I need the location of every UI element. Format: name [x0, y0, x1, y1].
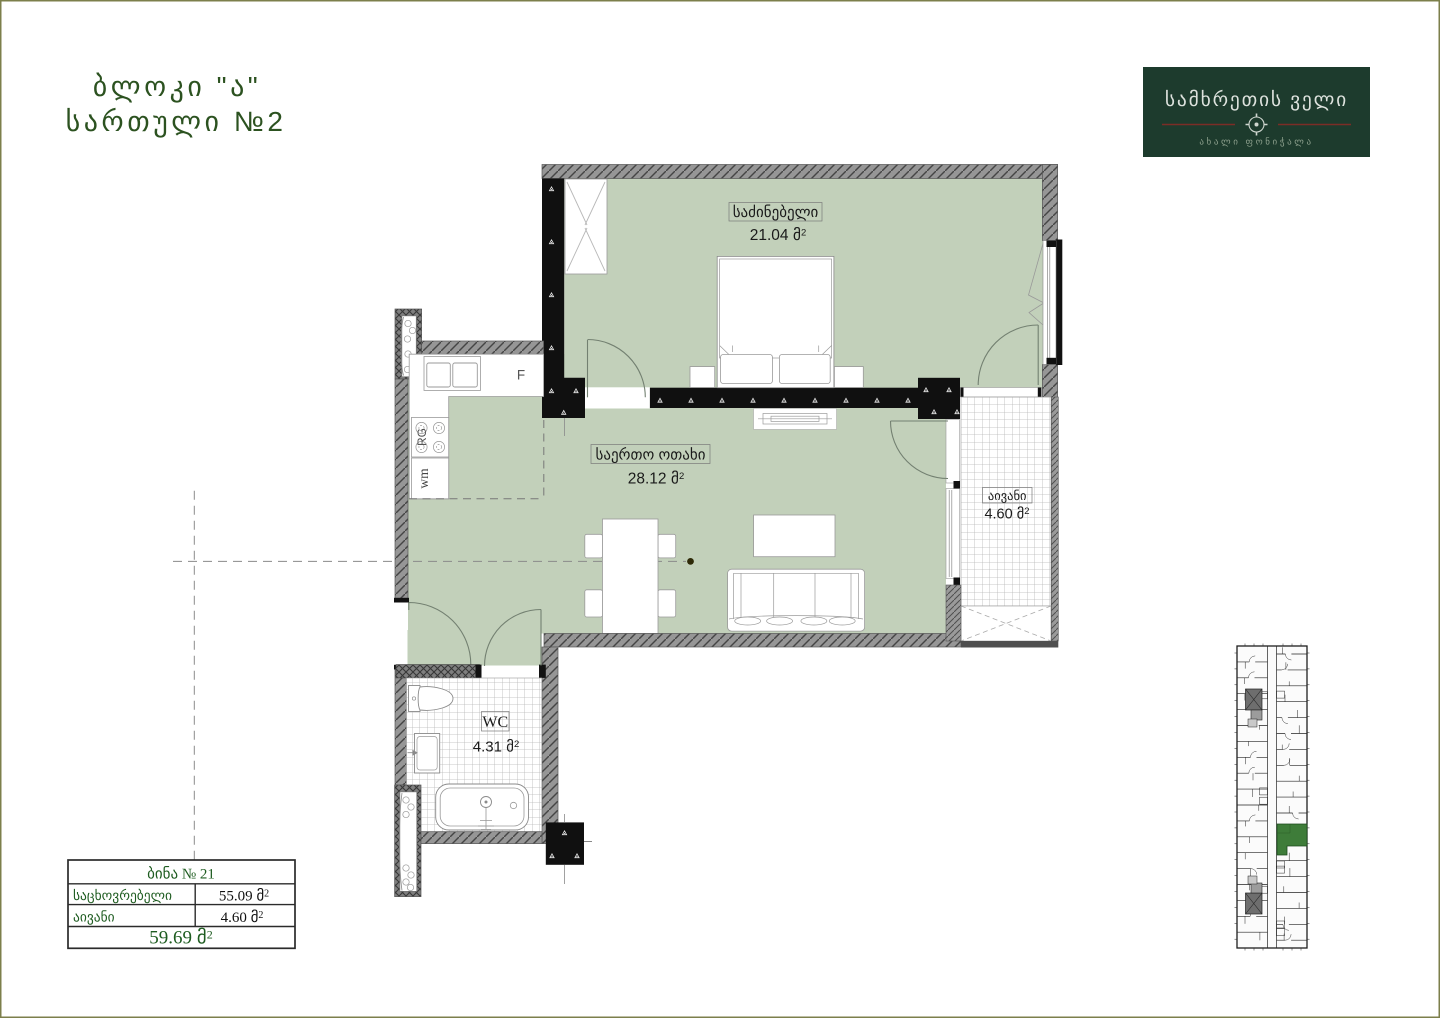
svg-text:4.31 მ2: 4.31 მ2 [473, 739, 520, 756]
svg-text:სართული №2: სართული №2 [66, 106, 287, 138]
svg-text:59.69 მ2: 59.69 მ2 [149, 928, 212, 949]
svg-text:აივანი: აივანი [73, 910, 115, 926]
svg-text:საძინებელი: საძინებელი [733, 204, 819, 221]
svg-text:F: F [517, 368, 525, 383]
svg-text:4.60 მ2: 4.60 მ2 [984, 506, 1029, 523]
svg-text:21.04 მ2: 21.04 მ2 [750, 226, 807, 244]
svg-text:28.12 მ2: 28.12 მ2 [628, 470, 685, 488]
svg-text:wm: wm [416, 468, 431, 489]
svg-text:საცხოვრებელი: საცხოვრებელი [73, 888, 172, 904]
svg-text:სამხრეთის ველი: სამხრეთის ველი [1165, 89, 1348, 111]
svg-text:ბინა № 21: ბინა № 21 [147, 866, 215, 883]
svg-text:55.09 მ2: 55.09 მ2 [219, 888, 269, 905]
svg-text:აივანი: აივანი [988, 489, 1027, 504]
svg-text:4.60 მ2: 4.60 მ2 [221, 909, 264, 926]
svg-text:ახალი ფონიჭალა: ახალი ფონიჭალა [1199, 137, 1313, 148]
svg-text:WC: WC [482, 714, 508, 731]
svg-text:საერთო ოთახი: საერთო ოთახი [595, 447, 705, 464]
svg-text:ბლოკი "ა": ბლოკი "ა" [93, 71, 261, 103]
svg-text:RG: RG [415, 428, 429, 446]
